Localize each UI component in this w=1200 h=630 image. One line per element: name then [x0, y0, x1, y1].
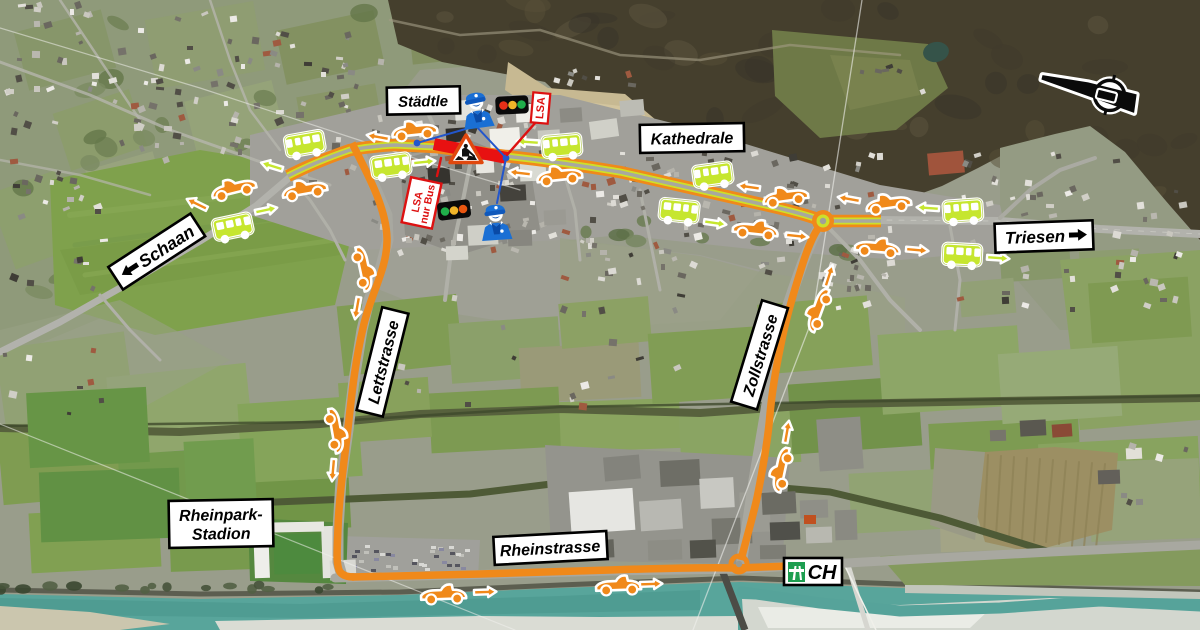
svg-text:Kathedrale: Kathedrale	[651, 130, 734, 148]
svg-text:CH: CH	[808, 562, 837, 584]
svg-text:Triesen: Triesen	[1005, 227, 1066, 248]
svg-text:Rheinpark-: Rheinpark-	[179, 507, 263, 525]
svg-text:Stadion: Stadion	[192, 526, 251, 544]
svg-text:Städtle: Städtle	[398, 93, 448, 111]
svg-text:LSA: LSA	[534, 97, 548, 120]
